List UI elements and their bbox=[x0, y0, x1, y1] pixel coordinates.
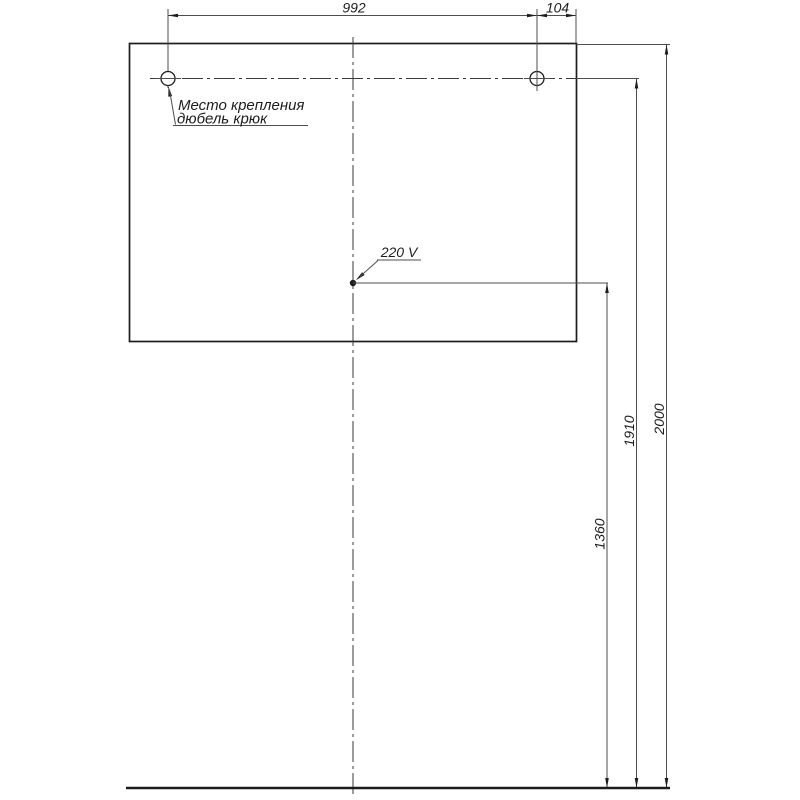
dimension-hook-height: 1910 bbox=[621, 415, 637, 446]
dimension-top-height: 2000 bbox=[651, 403, 667, 435]
dimension-hole-spacing: 992 bbox=[342, 0, 366, 16]
arrow-left-icon bbox=[168, 14, 178, 18]
socket-label: 220 V bbox=[380, 244, 419, 260]
arrow-up-icon bbox=[635, 79, 639, 89]
socket-leader-line bbox=[360, 261, 378, 277]
dimension-hole-to-edge: 104 bbox=[546, 0, 570, 16]
arrow-up-icon bbox=[665, 45, 669, 55]
arrow-down-icon bbox=[665, 778, 669, 788]
dimension-socket-height: 1360 bbox=[592, 518, 608, 549]
arrow-down-icon bbox=[605, 778, 609, 788]
mount-leader-line bbox=[170, 90, 176, 125]
technical-drawing: 992 104 Место крепления дюбель крюк 220 … bbox=[0, 0, 800, 800]
drawing-canvas: 992 104 Место крепления дюбель крюк 220 … bbox=[0, 0, 800, 800]
mount-point-label-line2: дюбель крюк bbox=[177, 111, 268, 128]
arrow-up-icon bbox=[605, 283, 609, 293]
arrow-down-icon bbox=[635, 778, 639, 788]
arrow-right-icon bbox=[527, 14, 537, 18]
